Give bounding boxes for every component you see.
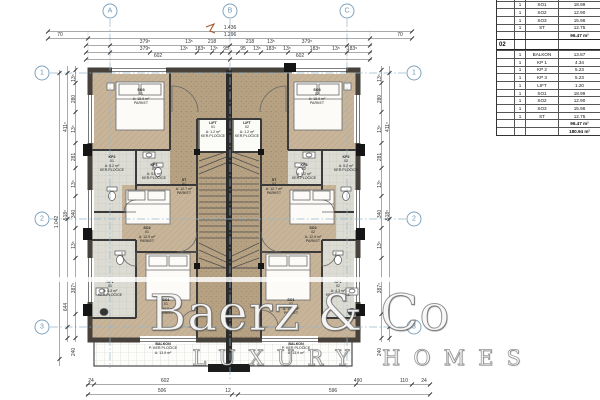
room-label-kp1-left: KP101 A: 4.3 m²KER.PLOČICE	[98, 280, 122, 298]
dim-label: 281	[71, 153, 77, 161]
dim-label: 13⁵	[71, 180, 77, 188]
room-label-kp2-right: KP202 A: 5.2 m²KER.PLOČICE	[334, 155, 358, 173]
dim-label: 218	[208, 39, 216, 45]
dim-label: 379⁵	[302, 39, 312, 45]
table-row: 1 SO212.90	[497, 96, 600, 104]
grid-bubble-c: C	[340, 4, 355, 19]
room-label-lift-right: LIFT02 A: 1.2 m²KER.PLOČICE	[235, 121, 259, 139]
grid-bubble-2-left: 2	[35, 212, 50, 227]
room-label-so3-left: SO301 A: 15.9 m²PARKET	[133, 88, 150, 106]
table-row: 1 LIFT1.20	[497, 0, 600, 1]
dim-label: 24	[88, 378, 94, 384]
table-row: 1 LIFT1.20	[497, 81, 600, 89]
room-label-kp2-left: KP201 A: 5.2 m²KER.PLOČICE	[100, 155, 124, 173]
grid-bubble-3-left: 3	[35, 320, 50, 335]
dim-label: 70	[397, 32, 403, 38]
dim-label: 13⁵	[253, 46, 261, 52]
dim-label: 110	[400, 378, 408, 384]
room-label-so2-left: SO201 A: 12.9 m²PARKET	[139, 226, 156, 244]
dim-label: 183⁵	[310, 46, 320, 52]
room-label-balkon-left: BALKONP: KER PLOČICE A: 13.9 m²	[149, 342, 178, 355]
table-row: 1 SO315.96	[497, 104, 600, 112]
dim-label: 13⁵	[377, 241, 383, 249]
dim-label: 340	[377, 210, 383, 218]
dim-label: 411⁵	[63, 122, 69, 132]
dim-label: 602	[154, 53, 162, 59]
dim-label: 13⁵	[185, 39, 193, 45]
grid-bubble-2-right: 2	[407, 212, 422, 227]
dim-label: 218	[246, 39, 254, 45]
dim-label: 340	[71, 210, 77, 218]
grid-bubble-b: B	[223, 4, 238, 19]
grid-bubble-1-left: 1	[35, 66, 50, 81]
table-row: 1 ST12.75	[497, 112, 600, 120]
dim-label: 13⁵	[377, 180, 383, 188]
grid-bubble-a: A	[103, 4, 118, 19]
table-row: 1 SO118.99	[497, 1, 600, 9]
dim-label: 411⁵	[385, 122, 391, 132]
table-row: 1 SO212.90	[497, 8, 600, 16]
dim-label: 506	[158, 388, 166, 394]
dim-label: 183⁵	[266, 46, 276, 52]
dim-label: 12	[225, 388, 231, 394]
dim-label: 183⁵	[195, 46, 205, 52]
table-row: 1 SO118.99	[497, 89, 600, 97]
watermark-rule	[58, 277, 563, 282]
table-total-row: 96.47 m²	[497, 119, 600, 127]
dim-label: 1.042	[54, 216, 60, 229]
dim-label: 644	[63, 303, 69, 311]
dim-label: 490	[354, 378, 362, 384]
watermark-brand: Baerz & Co	[149, 284, 450, 342]
dim-label: 1.436	[224, 25, 237, 31]
room-label-kp3-left: KP301 A: 5.2 m²KER.PLOČICE	[142, 163, 166, 181]
dim-label: 13⁵	[71, 241, 77, 249]
dim-label: 281	[377, 153, 383, 161]
table-row: 1 KP 14.34	[497, 58, 600, 66]
dim-label: 13⁵	[377, 74, 383, 82]
room-label-st-left: ST01 A: 12.7 m²PARKET	[176, 178, 193, 196]
room-label-st-right: ST02 A: 12.7 m²PARKET	[266, 178, 283, 196]
dim-label: 13⁵	[377, 125, 383, 133]
floor-plan-page: A B C 1 2 3 1 2 3 1.436 70 1.296 70 379⁵…	[0, 0, 600, 400]
table-section-row: 02	[497, 39, 600, 50]
dim-label: 95	[240, 46, 246, 52]
dim-label: 280	[377, 95, 383, 103]
dim-label: 1.296	[224, 32, 237, 38]
dim-label: 13⁵	[210, 46, 218, 52]
dim-label: 95	[223, 46, 229, 52]
dim-label: 280	[71, 95, 77, 103]
area-schedule-table: 1 LIFT1.20 1 SO118.99 1 SO212.90 1 SO315…	[496, 0, 600, 136]
table-row: 1 BALKON13.87	[497, 50, 600, 58]
dim-label: 13⁵	[71, 74, 77, 82]
dim-label: 13⁵	[283, 46, 291, 52]
table-total-row: 96.47 m²	[497, 31, 600, 39]
dim-label: 602	[161, 378, 169, 384]
grid-bubble-1-right: 1	[407, 66, 422, 81]
table-row: 1 KP 25.23	[497, 66, 600, 74]
watermark-tagline: LUXURY HOMES	[192, 346, 534, 370]
dim-label: 13⁵	[71, 125, 77, 133]
table-row: 1 ST12.75	[497, 24, 600, 32]
dim-label: 13⁵	[332, 46, 340, 52]
room-label-lift-left: LIFT01 A: 1.2 m²KER.PLOČICE	[201, 121, 225, 139]
dim-label: 379⁵	[140, 39, 150, 45]
dim-label: 240	[71, 348, 77, 356]
dim-label: 24	[421, 378, 427, 384]
dim-label: 379⁵	[140, 46, 150, 52]
dim-label: 518⁵	[63, 210, 69, 220]
room-label-kp3-right: KP302 A: 5.2 m²KER.PLOČICE	[292, 163, 316, 181]
dim-label: 596	[329, 388, 337, 394]
table-row: 1 SO315.96	[497, 16, 600, 24]
table-grand-total-row: 180.94 m²	[497, 127, 600, 135]
dim-label: 518⁵	[385, 210, 391, 220]
dim-label: 13⁵	[180, 46, 188, 52]
dim-label: 183⁵	[347, 46, 357, 52]
dim-label: 602	[296, 53, 304, 59]
room-label-so2-right: SO202 A: 12.9 m²PARKET	[305, 226, 322, 244]
dim-label: 387⁵	[71, 283, 77, 293]
dim-label: 70	[57, 32, 63, 38]
dim-label: 13⁵	[267, 39, 275, 45]
room-label-so3-right: SO302 A: 15.9 m²PARKET	[309, 88, 326, 106]
table-row: 1 KP 35.23	[497, 73, 600, 81]
